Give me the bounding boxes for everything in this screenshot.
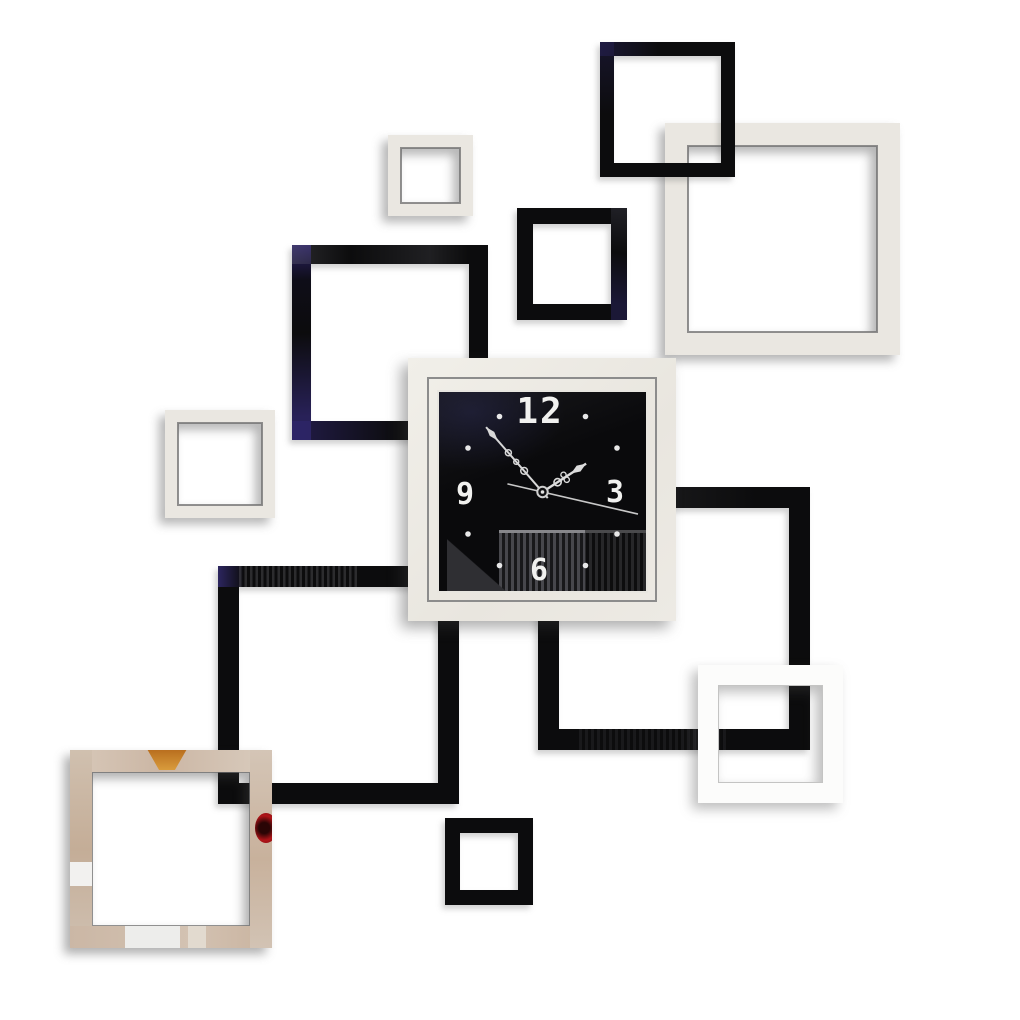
white-band-reflection (125, 926, 180, 948)
acrylic-sheen (611, 208, 627, 320)
numeral-12: 12 (516, 392, 563, 432)
acrylic-sheen (292, 245, 488, 264)
acrylic-sheen (292, 245, 311, 440)
clock-face: 12 3 6 9 (437, 390, 648, 593)
numeral-3: 3 (606, 475, 624, 510)
black-square-frame-small-center (517, 208, 627, 320)
lamp-reflection (145, 750, 189, 770)
numeral-9: 9 (456, 477, 474, 512)
acrylic-sheen (600, 42, 680, 56)
product-photo: 12 3 6 9 (0, 0, 1020, 1020)
silver-square-frame-small-left (165, 410, 275, 518)
acrylic-sheen (239, 566, 359, 587)
reflection-right-bar (250, 750, 272, 948)
clock-dial: 12 3 6 9 (439, 392, 646, 591)
black-square-frame-top (600, 42, 735, 177)
silver-mirror-frame-bottom-left (70, 750, 272, 948)
acrylic-sheen (600, 42, 614, 132)
white-band-reflection (188, 926, 206, 948)
black-square-frame-small-bottom (445, 818, 533, 905)
white-square-frame-bottom-right (698, 665, 843, 803)
red-object-reflection (250, 812, 272, 844)
white-band-reflection (70, 862, 92, 886)
wall-clock: 12 3 6 9 (408, 358, 676, 621)
numeral-6: 6 (530, 553, 548, 588)
silver-square-frame-small-top (388, 135, 473, 216)
reflection-top-bar (70, 750, 272, 772)
reflection-left-bar (70, 750, 92, 948)
acrylic-sheen (218, 566, 244, 587)
clock-center-dot (541, 490, 545, 494)
reflection-bottom-bar (70, 926, 272, 948)
